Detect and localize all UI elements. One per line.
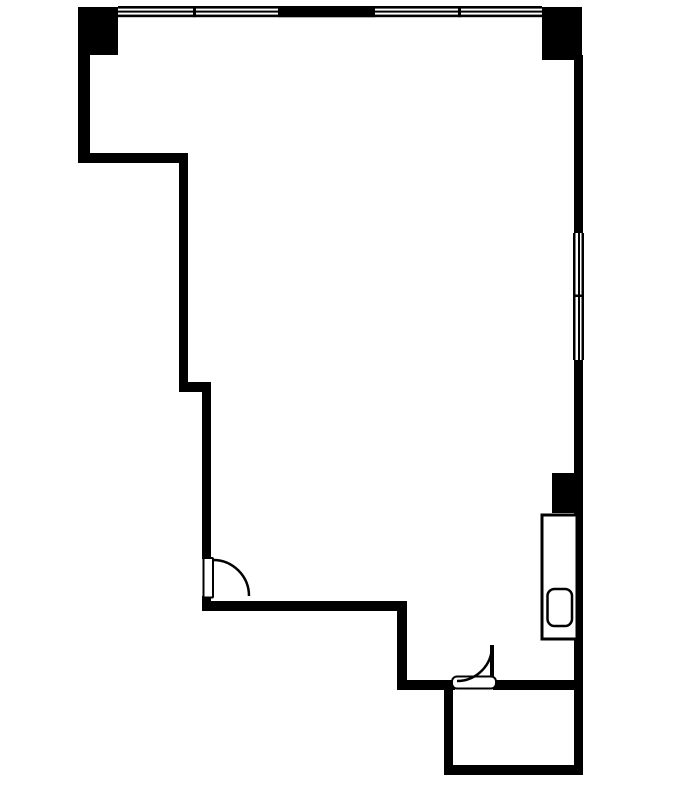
top-wall-solid-middle: [278, 6, 375, 17]
column-top-right: [542, 7, 582, 60]
door-left-swing-arc: [213, 560, 249, 596]
wall-left-upper: [78, 55, 90, 163]
top-window-mullion-right: [458, 6, 461, 17]
wall-left-middle: [179, 153, 188, 392]
wall-bottom-east: [493, 680, 583, 690]
top-window-mullion-left: [193, 6, 196, 17]
fixture-unit: [548, 589, 573, 626]
wall-left-lower: [202, 382, 211, 559]
door-left-leaf: [204, 558, 214, 598]
wall-bottom-west: [202, 601, 407, 611]
column-mid-right: [552, 473, 574, 513]
right-window-mullion: [573, 295, 584, 298]
wall-smallroom-bottom: [444, 765, 583, 775]
floor-plan-page: [0, 0, 693, 787]
wall-right-upper: [574, 55, 583, 233]
door-bottom-threshold: [452, 677, 496, 689]
column-top-left: [78, 7, 118, 55]
wall-step-upper: [78, 153, 188, 163]
floor-plan-canvas: [0, 0, 693, 787]
wall-smallroom-left: [444, 680, 453, 775]
wall-vertical-mid: [397, 601, 407, 690]
